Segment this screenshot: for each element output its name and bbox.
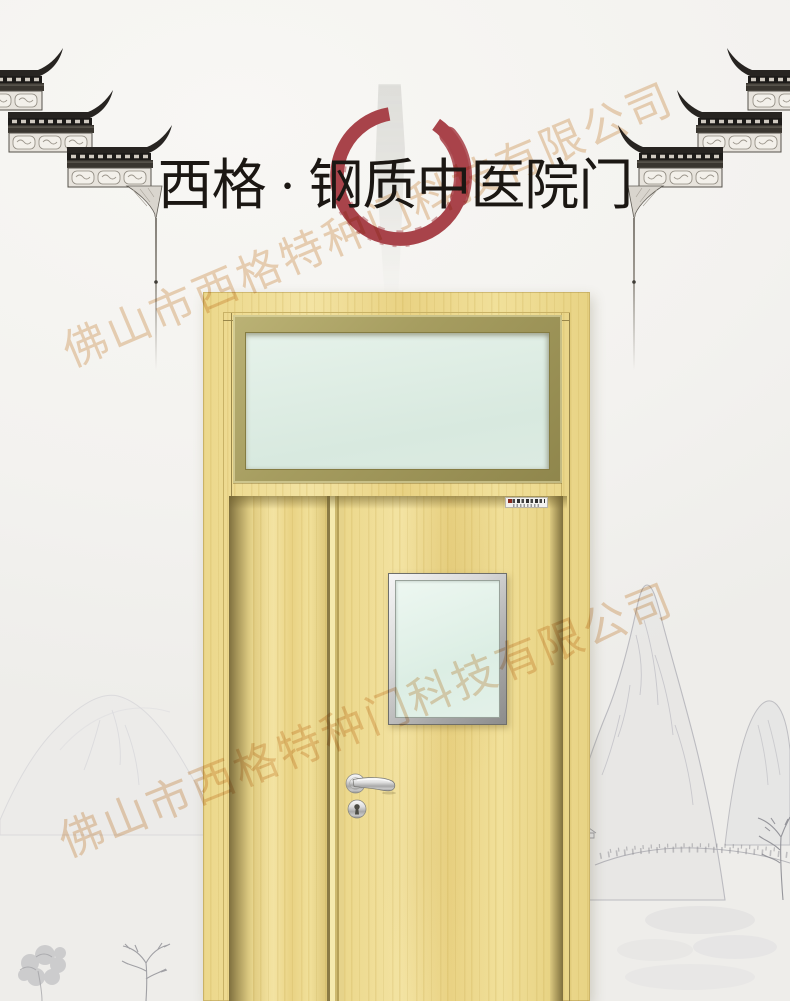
transom-window-frame — [233, 315, 562, 483]
ink-trees-icon — [0, 925, 200, 1001]
brand-plate-text-row — [513, 504, 540, 507]
door-handle-icon — [343, 770, 403, 822]
transom-glass — [245, 332, 550, 470]
door-leaf-main — [344, 496, 550, 1001]
brand-plate — [505, 497, 548, 508]
page-title: 西格 · 钢质中医院门 — [0, 140, 790, 220]
brand-plate-logo-row — [508, 499, 545, 503]
product-poster: 西格 · 钢质中医院门 — [0, 0, 790, 1001]
frame-rebate-right — [550, 496, 563, 1001]
